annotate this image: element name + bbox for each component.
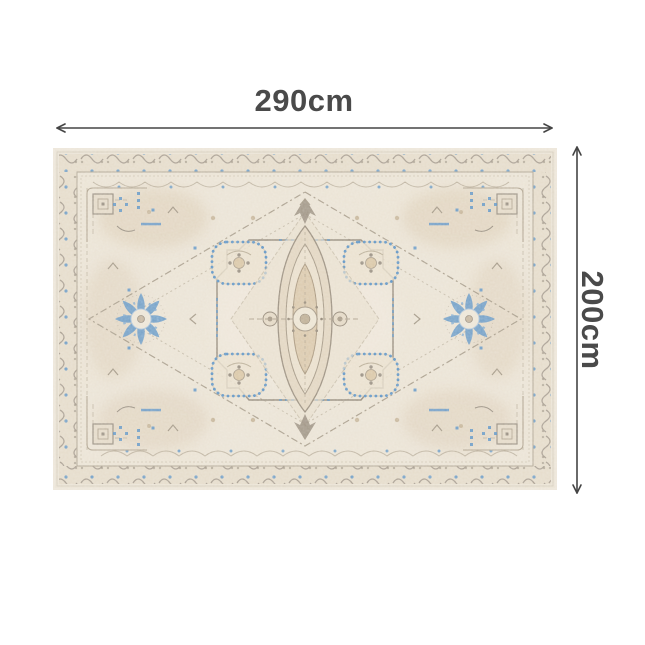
height-dimension-label: 200cm <box>576 240 608 400</box>
width-dimension-label: 290cm <box>154 84 454 118</box>
product-dimension-image: 290cm 200cm <box>0 0 645 645</box>
rug-image <box>53 148 557 490</box>
width-arrow-icon <box>54 121 555 135</box>
